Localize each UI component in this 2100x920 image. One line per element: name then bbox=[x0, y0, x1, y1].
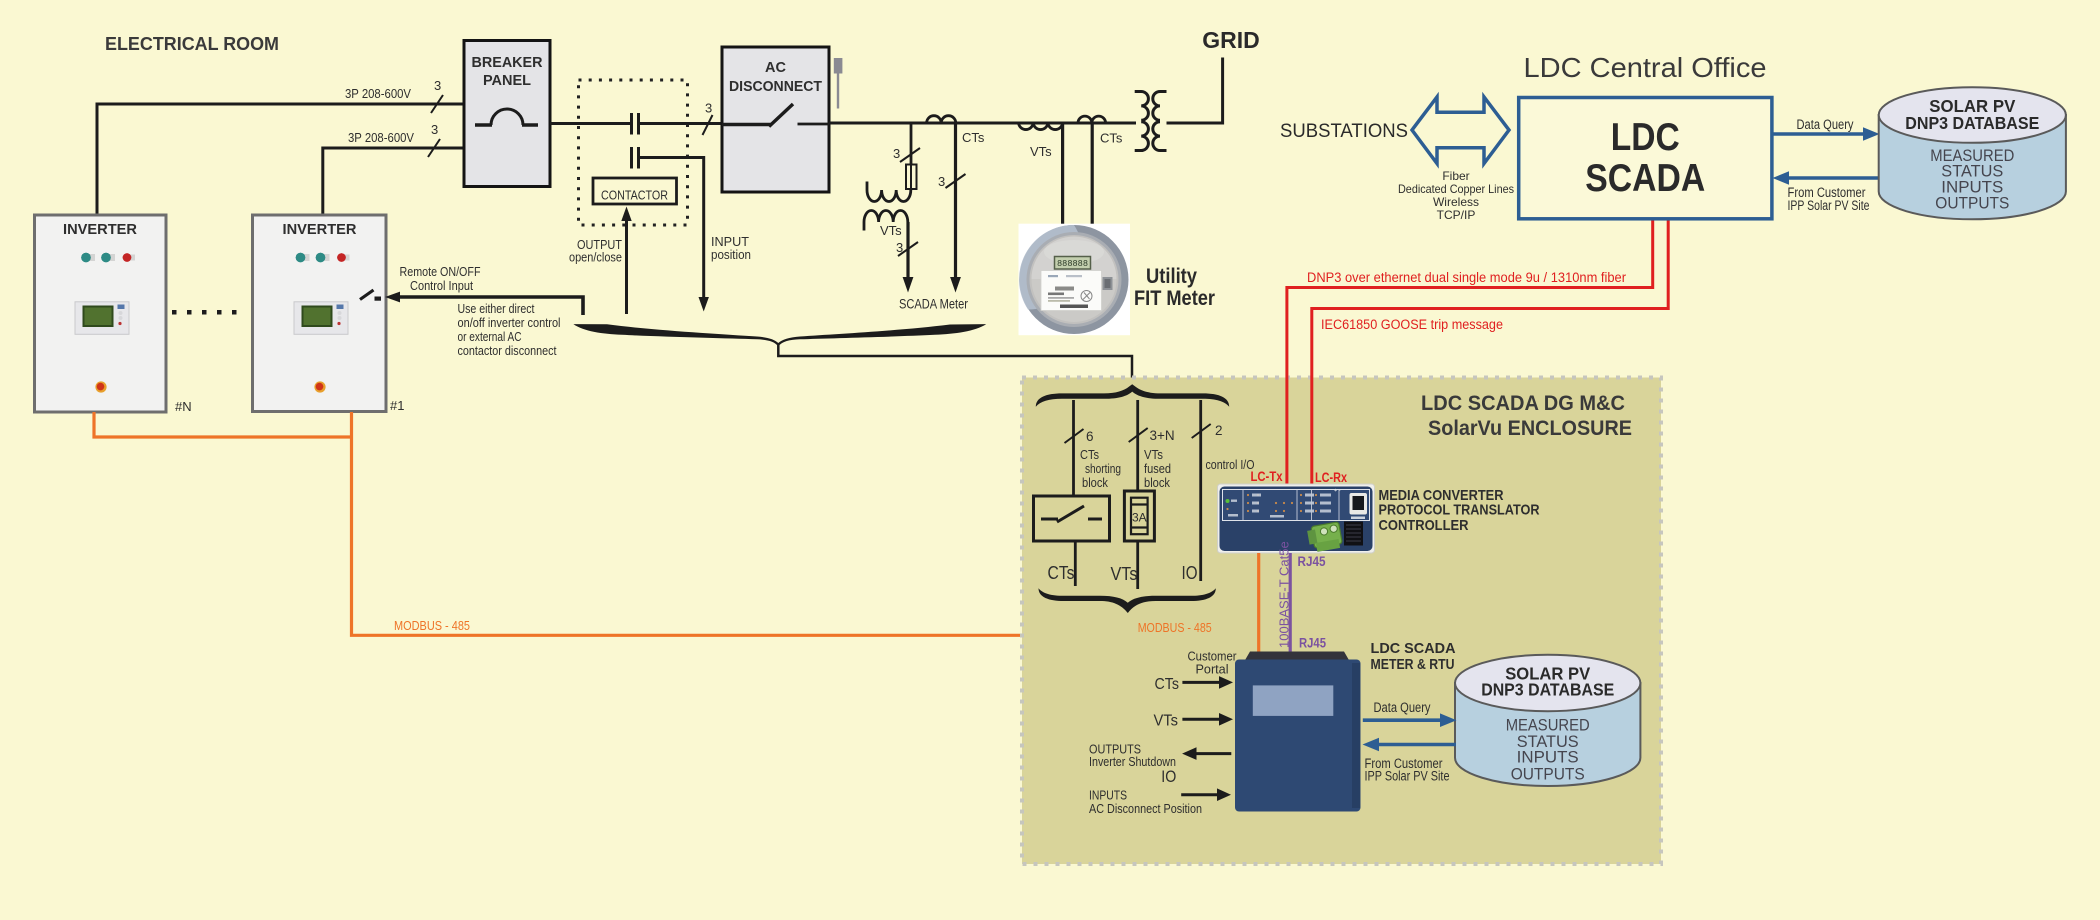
svg-text:position: position bbox=[711, 247, 751, 262]
svg-text:GRID: GRID bbox=[1202, 27, 1260, 53]
svg-text:INPUTS: INPUTS bbox=[1089, 789, 1127, 803]
svg-text:LDC Central Office: LDC Central Office bbox=[1524, 52, 1767, 83]
svg-text:OUTPUTS: OUTPUTS bbox=[1511, 766, 1585, 784]
svg-text:100BASE-T Cat5e: 100BASE-T Cat5e bbox=[1277, 541, 1292, 648]
svg-text:PANEL: PANEL bbox=[483, 73, 531, 89]
svg-text:Inverter Shutdown: Inverter Shutdown bbox=[1089, 755, 1176, 769]
svg-text:INPUTS: INPUTS bbox=[1517, 749, 1579, 767]
svg-text:fused: fused bbox=[1144, 462, 1171, 476]
svg-text:Use either direct: Use either direct bbox=[458, 301, 535, 316]
svg-text:TCP/IP: TCP/IP bbox=[1437, 208, 1476, 222]
svg-text:AC Disconnect Position: AC Disconnect Position bbox=[1089, 802, 1202, 816]
svg-text:6: 6 bbox=[1086, 429, 1094, 444]
svg-text:shorting: shorting bbox=[1085, 462, 1121, 476]
svg-text:Remote ON/OFF: Remote ON/OFF bbox=[400, 264, 481, 279]
svg-text:Fiber: Fiber bbox=[1442, 169, 1469, 183]
svg-text:RJ45: RJ45 bbox=[1299, 636, 1326, 651]
svg-text:MODBUS - 485: MODBUS - 485 bbox=[394, 619, 470, 633]
svg-text:3P 208-600V: 3P 208-600V bbox=[345, 87, 412, 101]
svg-text:contactor disconnect: contactor disconnect bbox=[458, 343, 557, 358]
svg-text:RJ45: RJ45 bbox=[1298, 554, 1326, 569]
svg-text:VTs: VTs bbox=[1111, 563, 1138, 584]
svg-text:3: 3 bbox=[434, 78, 441, 93]
svg-text:VTs: VTs bbox=[1030, 144, 1052, 159]
svg-text:3A: 3A bbox=[1132, 511, 1147, 525]
svg-text:888888: 888888 bbox=[1057, 259, 1088, 269]
svg-text:CONTROLLER: CONTROLLER bbox=[1379, 517, 1469, 534]
svg-text:block: block bbox=[1144, 476, 1171, 490]
svg-text:IPP Solar PV Site: IPP Solar PV Site bbox=[1788, 198, 1870, 213]
svg-text:LDC SCADA DG M&C: LDC SCADA DG M&C bbox=[1421, 392, 1625, 415]
svg-text:Utility: Utility bbox=[1146, 264, 1197, 288]
svg-text:2: 2 bbox=[1215, 423, 1223, 438]
svg-text:PROTOCOL TRANSLATOR: PROTOCOL TRANSLATOR bbox=[1379, 502, 1540, 519]
svg-text:Portal: Portal bbox=[1196, 663, 1229, 677]
svg-text:CTs: CTs bbox=[962, 130, 985, 145]
svg-text:control I/O: control I/O bbox=[1206, 457, 1255, 472]
svg-text:DNP3 over ethernet dual single: DNP3 over ethernet dual single mode 9u /… bbox=[1307, 270, 1626, 285]
svg-text:DNP3 DATABASE: DNP3 DATABASE bbox=[1481, 680, 1614, 700]
svg-text:LDC SCADA: LDC SCADA bbox=[1371, 640, 1456, 657]
svg-text:Data Query: Data Query bbox=[1374, 700, 1431, 715]
svg-text:CONTACTOR: CONTACTOR bbox=[601, 188, 668, 203]
svg-text:AC: AC bbox=[765, 60, 786, 76]
svg-text:LC-Tx: LC-Tx bbox=[1251, 469, 1283, 484]
svg-text:CTs: CTs bbox=[1048, 562, 1075, 583]
svg-text:INVERTER: INVERTER bbox=[63, 221, 137, 238]
svg-text:+ -: + - bbox=[1334, 488, 1341, 494]
svg-text:3: 3 bbox=[705, 101, 712, 116]
svg-text:Customer: Customer bbox=[1188, 650, 1237, 664]
svg-text:VTs: VTs bbox=[880, 223, 902, 238]
svg-text:MEASURED: MEASURED bbox=[1506, 717, 1590, 735]
svg-text:#N: #N bbox=[175, 399, 192, 414]
svg-text:IO: IO bbox=[1161, 768, 1176, 786]
svg-text:VTs: VTs bbox=[1154, 712, 1179, 729]
svg-text:Wireless: Wireless bbox=[1433, 195, 1479, 209]
svg-text:DISCONNECT: DISCONNECT bbox=[729, 79, 822, 95]
svg-text:3P 208-600V: 3P 208-600V bbox=[348, 131, 415, 145]
svg-text:DNP3 DATABASE: DNP3 DATABASE bbox=[1905, 113, 2039, 133]
svg-text:3: 3 bbox=[431, 122, 438, 137]
svg-text:Data Query: Data Query bbox=[1797, 117, 1854, 132]
svg-text:VTs: VTs bbox=[1144, 448, 1163, 462]
svg-text:MODBUS - 485: MODBUS - 485 bbox=[1138, 621, 1212, 635]
svg-text:3+N: 3+N bbox=[1150, 428, 1175, 443]
svg-text:FIT Meter: FIT Meter bbox=[1134, 286, 1216, 310]
svg-text:CTs: CTs bbox=[1080, 448, 1099, 462]
svg-text:3: 3 bbox=[938, 174, 945, 189]
svg-text:#1: #1 bbox=[390, 398, 404, 413]
svg-text:CTs: CTs bbox=[1100, 131, 1123, 146]
svg-text:CTs: CTs bbox=[1155, 676, 1180, 693]
svg-text:SCADA: SCADA bbox=[1585, 157, 1705, 200]
svg-text:or external AC: or external AC bbox=[458, 329, 522, 344]
svg-text:3: 3 bbox=[893, 146, 900, 161]
svg-text:on/off inverter control: on/off inverter control bbox=[458, 315, 561, 330]
svg-text:SCADA Meter: SCADA Meter bbox=[899, 297, 968, 312]
svg-text:INVERTER: INVERTER bbox=[283, 221, 357, 238]
svg-text:BREAKER: BREAKER bbox=[472, 55, 544, 71]
svg-text:Dedicated Copper Lines: Dedicated Copper Lines bbox=[1398, 182, 1514, 196]
svg-text:block: block bbox=[1082, 476, 1109, 490]
svg-text:METER & RTU: METER & RTU bbox=[1371, 656, 1455, 673]
svg-text:IO: IO bbox=[1182, 562, 1198, 583]
svg-text:SolarVu ENCLOSURE: SolarVu ENCLOSURE bbox=[1428, 417, 1632, 440]
svg-text:IEC61850 GOOSE trip message: IEC61850 GOOSE trip message bbox=[1321, 317, 1503, 332]
svg-text:OUTPUTS: OUTPUTS bbox=[1935, 195, 2009, 213]
svg-text:Control Input: Control Input bbox=[410, 278, 473, 293]
svg-text:ELECTRICAL ROOM: ELECTRICAL ROOM bbox=[105, 34, 279, 54]
svg-text:3: 3 bbox=[896, 240, 903, 255]
svg-text:SUBSTATIONS: SUBSTATIONS bbox=[1280, 121, 1408, 142]
svg-text:IPP Solar PV Site: IPP Solar PV Site bbox=[1365, 769, 1450, 784]
svg-text:LDC: LDC bbox=[1611, 116, 1680, 159]
svg-text:open/close: open/close bbox=[569, 250, 622, 265]
svg-text:LC-Rx: LC-Rx bbox=[1315, 470, 1347, 485]
